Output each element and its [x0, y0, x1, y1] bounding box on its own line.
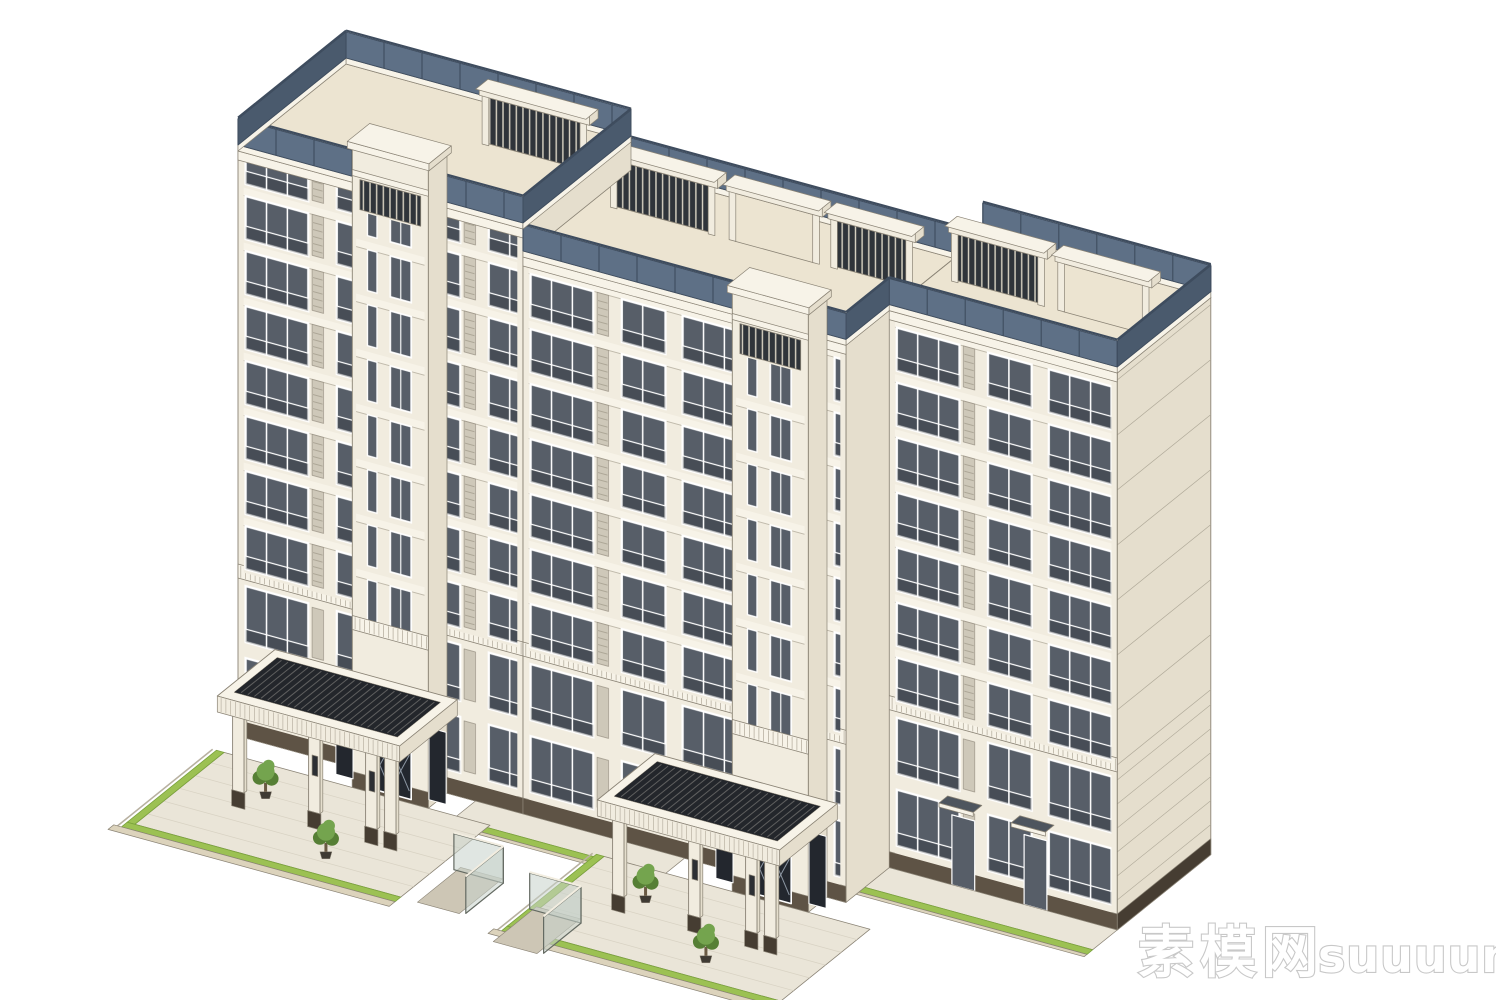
side-door	[809, 832, 826, 909]
tree-foliage	[703, 924, 715, 936]
plant-pot	[700, 956, 712, 963]
watermark-latin: suuuum.com	[1318, 929, 1496, 983]
portico-column	[233, 710, 244, 793]
wall-sconce	[369, 771, 375, 793]
wall-sconce	[749, 875, 755, 897]
portico-column	[385, 752, 396, 835]
end-wall-b	[846, 311, 889, 903]
tree-foliage	[323, 820, 335, 832]
tree-trunk	[264, 783, 267, 792]
stair-tower-windows	[736, 355, 804, 747]
side-door	[429, 728, 446, 805]
tree-trunk	[704, 947, 707, 956]
render-canvas: 素模网 suuuum.com	[0, 0, 1496, 1000]
wall-sconce	[312, 755, 318, 777]
tree-foliage	[643, 864, 655, 876]
plant-pot	[260, 792, 272, 799]
facade-windows	[895, 319, 1112, 763]
watermark: 素模网 suuuum.com	[1138, 921, 1496, 986]
portico-column-base	[384, 831, 397, 851]
service-door	[1024, 835, 1047, 911]
watermark-cn: 素模网	[1138, 921, 1324, 986]
tree-trunk	[324, 843, 327, 852]
tree-foliage	[263, 760, 275, 772]
tree-trunk	[644, 887, 647, 896]
portico-column-base	[745, 930, 758, 950]
wall-sconce	[692, 859, 698, 881]
portico-column-base	[612, 894, 625, 914]
portico-column-base	[365, 826, 378, 846]
portico-column	[613, 814, 624, 897]
portico-column-base	[764, 935, 777, 955]
plant-pot	[320, 852, 332, 859]
stair-tower-windows	[356, 211, 424, 643]
plant-pot	[640, 896, 652, 903]
apartment-building-model	[108, 31, 1211, 1000]
service-door	[952, 815, 975, 891]
portico-column-base	[232, 790, 245, 810]
portico-column	[765, 856, 776, 939]
building-render: 素模网 suuuum.com	[0, 0, 1496, 1000]
end-wall-c	[1117, 298, 1211, 930]
